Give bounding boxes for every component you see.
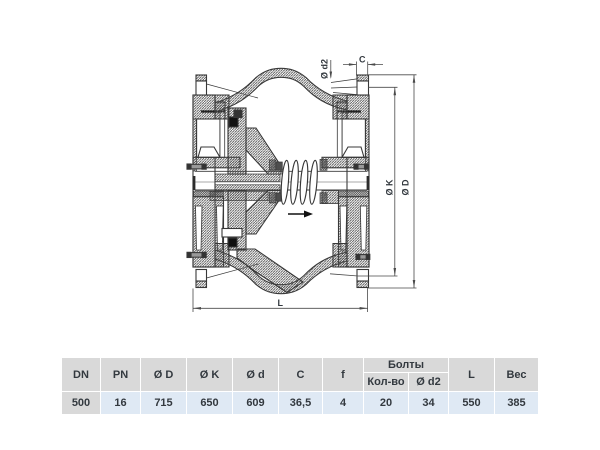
svg-text:C: C	[359, 54, 366, 64]
svg-text:Ø D: Ø D	[401, 179, 411, 196]
svg-text:Ø K: Ø K	[385, 179, 395, 196]
svg-text:L: L	[278, 298, 284, 308]
svg-text:Ø d2: Ø d2	[320, 59, 330, 79]
